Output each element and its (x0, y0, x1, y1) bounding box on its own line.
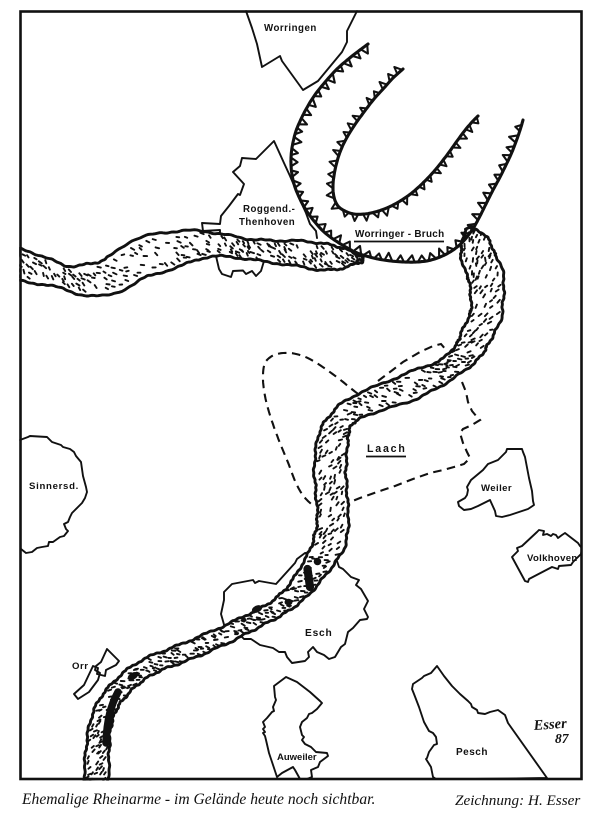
svg-text:Esch: Esch (305, 628, 333, 639)
svg-text:Volkhoven: Volkhoven (527, 553, 578, 564)
svg-text:Laach: Laach (367, 443, 407, 455)
svg-text:Worringer - Bruch: Worringer - Bruch (355, 229, 444, 240)
svg-text:Sinnersd.: Sinnersd. (29, 481, 79, 492)
svg-text:Auweiler: Auweiler (277, 752, 317, 763)
svg-text:Roggend.-: Roggend.- (243, 204, 295, 215)
svg-text:87: 87 (555, 731, 570, 746)
svg-text:Zeichnung: H. Esser: Zeichnung: H. Esser (455, 792, 580, 809)
svg-text:Orr: Orr (72, 661, 88, 672)
svg-text:Pesch: Pesch (456, 747, 488, 758)
svg-text:Ehemalige Rheinarme - im Gelän: Ehemalige Rheinarme - im Gelände heute n… (21, 791, 375, 808)
svg-text:Weiler: Weiler (481, 483, 512, 494)
svg-text:Thenhoven: Thenhoven (239, 217, 295, 228)
svg-text:Worringen: Worringen (264, 23, 317, 34)
